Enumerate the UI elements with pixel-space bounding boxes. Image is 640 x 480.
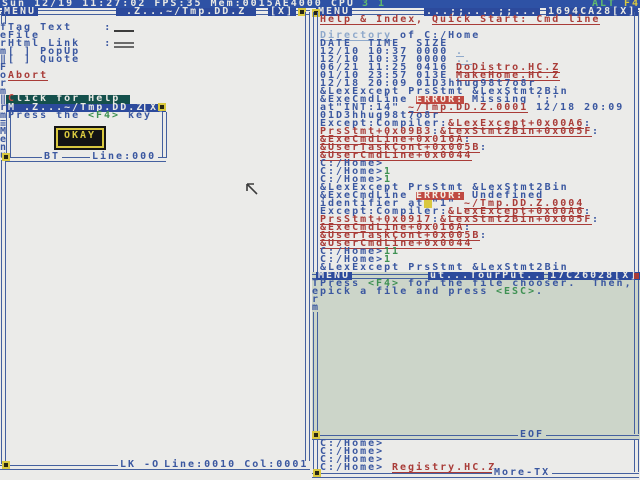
file-chooser-dialog: MENU ut...TourPut.. 17C26028[X] TermPres… [312,272,640,440]
more-indicator: More-TX [492,469,552,477]
text-segment: key [120,112,152,120]
mouse-cursor [244,182,260,198]
okay-button[interactable]: OKAY [54,126,106,150]
window-title[interactable]: .Z...~/Tmp.DD.Z [116,8,256,16]
text-segment: Press the [8,112,88,120]
text-segment: : [592,128,600,136]
close-icon[interactable]: [X] [268,8,296,16]
resize-handle[interactable] [312,431,320,439]
input-field[interactable] [114,30,134,32]
link[interactable]: Abort [8,72,48,81]
editor-position: Line:0010 Col:0001 [162,461,310,469]
resize-handle[interactable] [2,461,10,469]
okay-button-label: OKAY [54,129,106,143]
link[interactable]: Registry.HC.Z [392,464,496,473]
window-border [162,112,167,158]
text-segment: 12/18 20:09 [528,104,624,112]
screen: Sun 12/19 11:27:02 FPS:35 Mem:0015AE4000… [0,0,640,480]
text-segment: , [416,16,432,24]
menu-button[interactable]: MENU [2,8,38,16]
editor-flags: LK -O [118,461,162,469]
text-segment: pick a file and press [320,288,496,296]
resize-handle[interactable] [313,469,321,477]
text-segment: 3 1 [362,0,386,8]
input-field[interactable] [114,42,134,44]
corner-dot-icon [634,273,639,279]
text-segment: : [480,144,488,152]
input-field[interactable] [114,46,134,48]
text-segment: <ESC> [496,288,536,296]
resize-handle[interactable] [2,153,10,161]
window-border [312,473,639,478]
text-segment: [ ] Quote [8,56,80,64]
text-segment: . [536,288,544,296]
popup-flags: BT [42,153,62,161]
cursor-arrow-icon [244,182,260,198]
resize-handle[interactable] [158,103,166,111]
popup-line-indicator: Line:000 [90,153,158,161]
link[interactable]: Help & Index [320,16,416,25]
window-border [305,12,310,464]
close-icon[interactable]: [X] [612,6,636,17]
border-text-char: m [312,304,320,312]
text-segment: : [480,232,488,240]
eof-indicator: EOF [518,431,546,439]
link[interactable]: Quick Start: Cmd line [432,16,600,25]
text-segment: C:/Home> [320,464,392,472]
text-segment: : [592,216,600,224]
window-border [634,280,639,434]
window-border [313,312,318,434]
text-segment: <F4> [88,112,120,120]
